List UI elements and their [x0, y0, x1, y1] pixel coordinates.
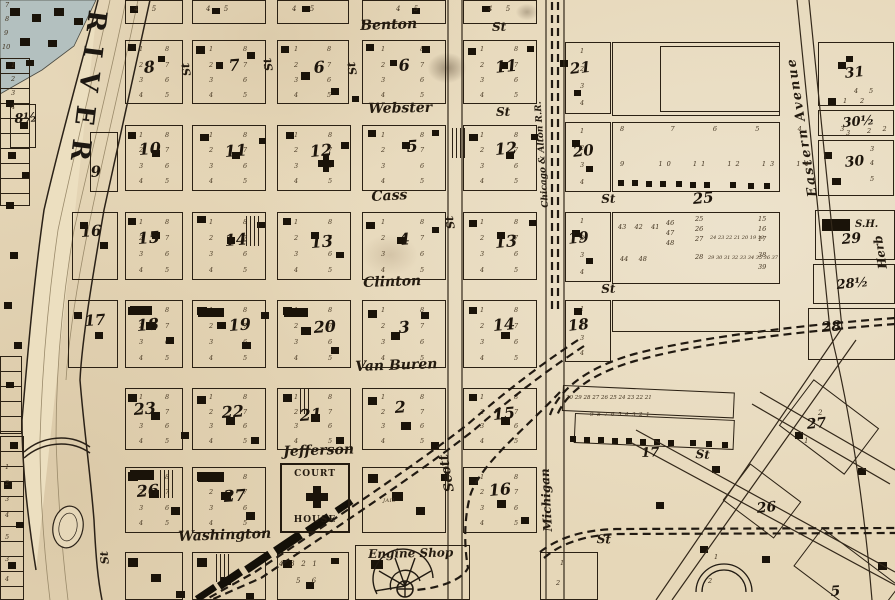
roundhouse [373, 549, 433, 597]
building [100, 242, 108, 249]
city-block: 18273645 [463, 300, 537, 368]
lot-number: 7 [514, 234, 518, 242]
building [858, 468, 866, 475]
building [216, 554, 230, 582]
lot-number: 39 [758, 264, 766, 271]
lot-number: 1 [480, 473, 484, 481]
building [6, 62, 15, 69]
lot-number: 5 [514, 354, 518, 362]
lot-number: 7 [328, 146, 332, 154]
lot-number: 3 [294, 76, 298, 84]
building [762, 556, 770, 563]
building [128, 394, 137, 402]
building [824, 152, 832, 159]
building [130, 306, 152, 315]
lot-number: 6 [514, 504, 518, 512]
street-label: St [601, 192, 616, 206]
lot-number: 17 [758, 236, 766, 243]
lot-number: 5 [243, 354, 247, 362]
lot-number: 4 5 [206, 6, 228, 13]
lot-number: 6 [514, 162, 518, 170]
lot-number: 6 [328, 338, 332, 346]
building [574, 308, 582, 315]
block-number: 28½ [836, 275, 869, 293]
lot-number: 4 [381, 91, 385, 99]
block-number: 9 [90, 162, 102, 181]
street-label: S.H. [855, 219, 878, 230]
street-label: St [492, 20, 506, 34]
lot-number: 1 [580, 305, 584, 313]
city-block: 18273645 [463, 40, 537, 104]
lot-number: 2 [294, 234, 298, 242]
city-block [574, 413, 735, 450]
lot-number: 1 [294, 306, 298, 314]
lot-number: 5 [165, 266, 169, 274]
building [846, 56, 853, 62]
building [6, 100, 14, 107]
lot-number: 4 [870, 160, 874, 167]
lot-number: 4 [580, 178, 584, 186]
lot-number: 7 [243, 322, 247, 330]
lot-number: 4 [480, 177, 484, 185]
lot-number: 2 [580, 65, 584, 73]
building [390, 60, 397, 66]
river-label: RIVER [62, 8, 112, 176]
lot-number: 5 [165, 354, 169, 362]
building [822, 219, 850, 231]
city-block: 18273645 [192, 388, 266, 450]
city-block: 18273645 [125, 125, 183, 191]
lot-number: 2 [860, 98, 864, 105]
building [198, 308, 224, 317]
building [22, 172, 29, 178]
lot-number: 1 [480, 45, 484, 53]
river-and-terrain [0, 0, 895, 600]
block-number: 23 [133, 398, 157, 419]
lot-number: 6 [328, 162, 332, 170]
lot-number: 5 [165, 91, 169, 99]
block-number: 26 [136, 480, 160, 501]
lot-number: 5 [420, 91, 424, 99]
block-number: 21 [299, 404, 323, 425]
city-block [192, 0, 266, 24]
lot-number: 3 [5, 556, 9, 563]
lot-number: 4 [854, 88, 858, 95]
lot-number: 2 [139, 234, 143, 242]
building [4, 482, 12, 489]
city-block [192, 552, 266, 600]
street-label: Van Buren [355, 356, 438, 375]
city-block [808, 308, 895, 360]
block-number: 15 [492, 403, 516, 424]
lot-number: 2 [480, 61, 484, 69]
lot-number: 3 [381, 422, 385, 430]
lot-number: 2 [818, 410, 822, 417]
lot-number: 1 [209, 218, 213, 226]
lot-number: 1 [381, 218, 385, 226]
lot-number: 9 10 11 12 13 14 [620, 161, 813, 168]
lot-number: 2 [139, 61, 143, 69]
lot-number: 3 [480, 250, 484, 258]
city-block: 18273645 [192, 40, 266, 104]
lot-number: 7 [514, 408, 518, 416]
city-block: 18273645 [362, 212, 446, 280]
lot-number: 1 [381, 131, 385, 139]
lot-number: 9 8 7 6 5 4 3 2 1 [590, 413, 649, 419]
lot-number: 1 [804, 438, 808, 445]
lot-number: 7 [165, 408, 169, 416]
lot-number: 8 [243, 393, 247, 401]
city-block [612, 212, 780, 284]
building [10, 8, 20, 16]
lot-number: 4 3 2 1 [279, 561, 317, 568]
block-number: 11 [494, 56, 518, 77]
building [151, 574, 161, 582]
turntable [397, 581, 413, 597]
lot-number: 8 [165, 306, 169, 314]
street-label: Webster [368, 100, 432, 117]
building [712, 466, 720, 473]
street-label: Washington [178, 526, 271, 545]
lot-number: 8 [328, 393, 332, 401]
building [302, 6, 310, 12]
lot-number: 4 [209, 266, 213, 274]
building [197, 472, 207, 481]
city-block: 1234 [565, 212, 611, 282]
lot-number: 47 [666, 230, 674, 237]
street-label: St [695, 447, 710, 462]
building [151, 412, 160, 420]
lot-number: 3 [209, 76, 213, 84]
lot-number: 4 [209, 177, 213, 185]
building [311, 232, 319, 239]
building [217, 322, 226, 329]
block-number: 5 [830, 583, 841, 600]
city-block: 18273645 [277, 125, 351, 191]
lot-number: 4 [480, 519, 484, 527]
lot-number: 3 [381, 162, 385, 170]
lot-number: 2 [5, 480, 9, 487]
lot-number: 1 [139, 45, 143, 53]
city-block [125, 552, 183, 600]
lot-number: 4 [209, 354, 213, 362]
lot-number: 1 [209, 45, 213, 53]
building [331, 88, 339, 95]
building [227, 237, 235, 244]
lot-number: 8 [165, 131, 169, 139]
building [431, 442, 439, 449]
city-block: 18273645 [277, 388, 351, 450]
lot-number: 30 29 28 27 26 25 24 23 22 21 [566, 396, 652, 402]
building [676, 181, 682, 187]
lot-number: 6 [243, 76, 247, 84]
lot-number: 7 [420, 61, 424, 69]
lot-number: 8 [243, 131, 247, 139]
building [838, 62, 846, 69]
building [197, 307, 207, 315]
lot-number: 1 [139, 218, 143, 226]
building [748, 183, 754, 189]
building [4, 302, 12, 309]
lot-number: 4 [580, 268, 584, 276]
block-number: 11 [224, 140, 248, 161]
lot-number: 4 [11, 104, 15, 111]
block-number: 16 [80, 222, 102, 241]
lot-number: 1 [294, 45, 298, 53]
lot-number: 5 [514, 437, 518, 445]
street-label: Herb [871, 235, 890, 270]
lot-number: 2 [381, 234, 385, 242]
lot-number: 26 [695, 226, 703, 233]
lot-number: 7 [514, 146, 518, 154]
lot-number: 5 [243, 177, 247, 185]
lot-number: 1 [209, 131, 213, 139]
lot-number: 2 [480, 408, 484, 416]
city-block: 18273645 [125, 467, 183, 533]
building [95, 332, 103, 339]
building [368, 397, 377, 405]
lot-number: 4 5 [134, 6, 156, 13]
building [452, 128, 465, 158]
lot-number: 7 [165, 234, 169, 242]
lot-number: 4 [209, 91, 213, 99]
city-block: 18273645 [362, 388, 446, 450]
lot-number: 27 [695, 236, 703, 243]
building [468, 48, 476, 55]
building [74, 18, 83, 25]
lot-number: 8 [514, 306, 518, 314]
building [368, 474, 378, 483]
building [16, 522, 24, 528]
city-block: 18273645 [362, 300, 446, 368]
city-block [0, 436, 24, 600]
roads-and-railroads [0, 0, 895, 600]
building [626, 438, 632, 444]
lot-number: 38 [758, 252, 766, 259]
lot-number: 15 [758, 216, 766, 223]
block-number: 6 [313, 57, 325, 77]
lot-number: 9 [4, 30, 8, 37]
city-block: 18273645 [192, 300, 266, 368]
lot-number: 3 [580, 251, 584, 259]
city-block [723, 463, 802, 538]
lot-number: 5 [420, 177, 424, 185]
building [422, 46, 430, 53]
lot-number: 1 [381, 393, 385, 401]
building [246, 593, 254, 599]
building [341, 142, 349, 149]
street-label: Chicago & Alton R.R. [534, 101, 551, 208]
street-label: St [443, 215, 458, 230]
lot-number: 3 [294, 422, 298, 430]
city-block [463, 0, 537, 24]
lot-number: 8 [165, 473, 169, 481]
lot-number: 5 6 [296, 578, 316, 585]
city-block [612, 122, 780, 192]
building [521, 517, 529, 524]
lot-number: 1 [139, 131, 143, 139]
building [226, 417, 235, 425]
lot-number: 4 [381, 437, 385, 445]
lot-number: 2 [209, 234, 213, 242]
lot-number: 3 [480, 422, 484, 430]
city-block [818, 42, 894, 106]
lot-number: 5 [328, 177, 332, 185]
building [828, 98, 836, 105]
lot-number: 3 [209, 250, 213, 258]
lot-number: 8 [327, 45, 331, 53]
city-block [813, 264, 895, 304]
lot-number: 7 [328, 408, 332, 416]
lot-number: 1 [714, 554, 718, 561]
building [527, 46, 534, 52]
block-number: 2 [394, 397, 406, 417]
lot-number: 44 48 [620, 256, 647, 263]
building [352, 96, 359, 102]
building [497, 232, 505, 239]
court-house-building [313, 486, 321, 508]
city-block [793, 528, 895, 600]
building [586, 166, 593, 172]
lot-number: 3 [480, 338, 484, 346]
lot-number: 7 [5, 2, 9, 9]
lot-number: 8 [328, 218, 332, 226]
lot-number: 3 [209, 162, 213, 170]
city-block: 18273645 [463, 212, 537, 280]
plat-map[interactable]: 1827364518273645182736451827364518273645… [0, 0, 895, 600]
lot-number: 3 [139, 338, 143, 346]
lot-number: 7 [514, 488, 518, 496]
lot-number: 5 [5, 534, 9, 541]
block-number: 16 [488, 479, 512, 500]
lot-number: 3 [480, 504, 484, 512]
lot-number: 8 [420, 131, 424, 139]
lot-number: 5 [243, 519, 247, 527]
building [10, 442, 18, 449]
lot-number: 1 [139, 473, 143, 481]
city-block [125, 0, 183, 24]
city-block: 18273645 [125, 388, 183, 450]
block-number: 5 [406, 136, 418, 156]
lot-number: 7 [243, 408, 247, 416]
lot-number: 4 [139, 177, 143, 185]
lot-number: 4 [480, 266, 484, 274]
street-label: Engine Shop [368, 546, 453, 561]
building [612, 438, 618, 444]
building [690, 440, 696, 446]
lot-number: 4 [480, 354, 484, 362]
lot-number: 6 [165, 504, 169, 512]
lot-number: 1 [480, 131, 484, 139]
building [128, 472, 138, 481]
lot-number: 8 [165, 393, 169, 401]
building [197, 216, 206, 223]
building [32, 14, 41, 22]
lot-number: 7 [328, 322, 332, 330]
building [412, 8, 420, 14]
lot-number: 2 [209, 146, 213, 154]
city-block: 18273645 [125, 300, 183, 368]
building [246, 512, 255, 520]
court-house-label-line1: COURT [282, 469, 348, 479]
building [366, 222, 375, 229]
lot-number: 8 [328, 131, 332, 139]
building [660, 181, 666, 187]
lot-number: 5 [165, 177, 169, 185]
building [301, 72, 310, 80]
block-number: 13 [494, 231, 518, 252]
lot-number: 2 [139, 408, 143, 416]
lot-number: 10 [2, 44, 10, 51]
building [152, 232, 160, 239]
block-number: 15 [137, 227, 161, 248]
lot-number: 2 [209, 408, 213, 416]
city-block [277, 552, 349, 600]
block-number: 26 [756, 499, 777, 517]
lot-number: 3 [294, 250, 298, 258]
lot-number: 5 [420, 266, 424, 274]
building [6, 202, 14, 209]
building [232, 152, 240, 159]
road-lines [448, 0, 895, 600]
city-blocks-layer: 1827364518273645182736451827364518273645… [0, 0, 895, 600]
lot-number: 8 [420, 393, 424, 401]
city-block [818, 110, 894, 136]
lot-number: 1 [209, 393, 213, 401]
block-number: 19 [228, 314, 252, 335]
city-block [10, 104, 36, 148]
lot-number: 8 [420, 218, 424, 226]
lot-number: 2 [139, 322, 143, 330]
block-number: 30½ [842, 113, 875, 131]
building [832, 178, 841, 185]
building [586, 258, 593, 264]
city-block [779, 379, 879, 475]
building [656, 502, 664, 509]
lot-number: 7 [243, 146, 247, 154]
lot-number: 5 [243, 266, 247, 274]
city-block [362, 467, 446, 533]
lot-number: 7 [165, 322, 169, 330]
street-label: St [597, 532, 612, 546]
block-number: 21 [569, 58, 592, 78]
lot-number: 2 [209, 322, 213, 330]
building [128, 44, 136, 51]
lot-number: 8 [514, 473, 518, 481]
lot-number: 2 [381, 146, 385, 154]
building [704, 182, 710, 188]
building [482, 6, 490, 12]
paper-texture [0, 0, 895, 600]
building [668, 440, 674, 446]
lot-number: 7 [420, 408, 424, 416]
building [158, 56, 165, 62]
lot-number: 1 [11, 62, 15, 69]
building [878, 562, 887, 570]
lot-number: 2 [294, 61, 298, 69]
lot-number: 1 [560, 560, 564, 567]
block-number: 18 [136, 314, 160, 335]
lot-number: 3 [209, 504, 213, 512]
lot-number: 5 [243, 437, 247, 445]
lot-number: 4 [294, 354, 298, 362]
block-number: 27 [806, 415, 827, 433]
lot-number: 4 [381, 266, 385, 274]
building [469, 307, 477, 314]
lot-number: 8 [514, 45, 518, 53]
lot-number: 3 [580, 82, 584, 90]
lot-number: 2 [294, 146, 298, 154]
